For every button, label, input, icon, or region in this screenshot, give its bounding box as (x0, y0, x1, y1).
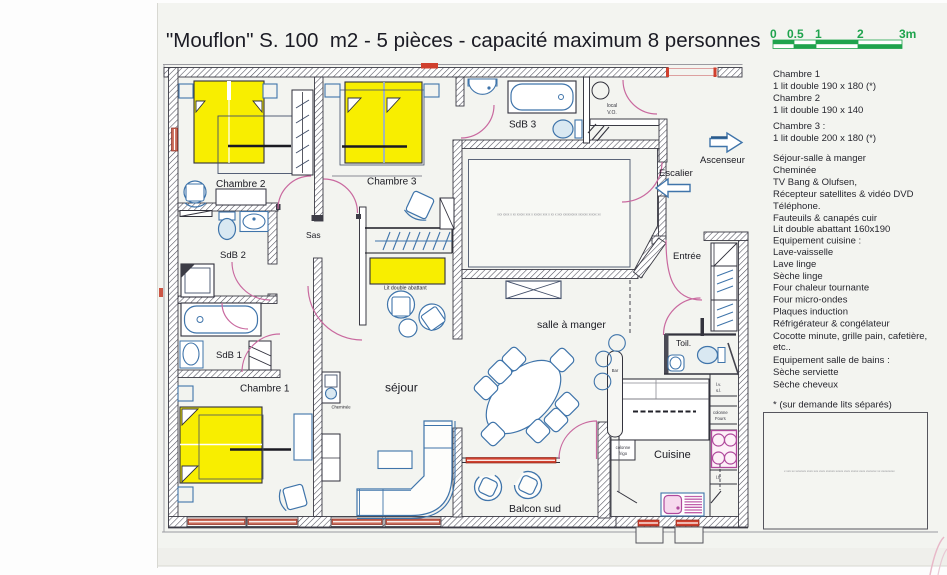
svg-text:Balcon sud: Balcon sud (509, 503, 561, 515)
svg-text:Lit double abattant: Lit double abattant (384, 286, 427, 292)
svg-text:Réfrigérateur & congélateur: Réfrigérateur & congélateur (773, 319, 890, 330)
svg-text:Ascenseur: Ascenseur (700, 155, 745, 166)
svg-text:etc..: etc.. (773, 342, 791, 353)
svg-text:Equipement cuisine :: Equipement cuisine : (773, 236, 861, 247)
svg-text:* (sur demande lits séparés): * (sur demande lits séparés) (773, 400, 892, 411)
svg-text:séjour: séjour (385, 381, 418, 395)
svg-text:Sèche linge: Sèche linge (773, 271, 823, 282)
svg-text:Chambre 1: Chambre 1 (773, 69, 820, 80)
svg-text:Cuisine: Cuisine (654, 449, 691, 461)
svg-text:Lave linge: Lave linge (773, 259, 816, 270)
svg-text:1 lit double 190 x 140: 1 lit double 190 x 140 (773, 105, 863, 116)
svg-text:Sèche serviette: Sèche serviette (773, 367, 838, 378)
svg-text:Chambre 1: Chambre 1 (240, 384, 290, 395)
svg-text:Entrée: Entrée (673, 251, 701, 262)
svg-text:xxx xxxx x xx xxxxx xxx x xxxx: xxx xxxx x xx xxxxx xxx x xxxxx xxx x xx… (497, 213, 601, 217)
svg-text:colonne: colonne (616, 445, 631, 450)
svg-text:l.fr.: l.fr. (716, 475, 722, 480)
svg-text:TV Bang & Olufsen,: TV Bang & Olufsen, (773, 177, 857, 188)
svg-text:Lave-vaisselle: Lave-vaisselle (773, 247, 833, 258)
svg-text:Cheminée: Cheminée (773, 165, 816, 176)
svg-text:l.v.: l.v. (716, 382, 721, 387)
svg-text:Téléphone.: Téléphone. (773, 201, 821, 212)
svg-text:1: 1 (815, 27, 822, 41)
svg-text:1 lit double 200 x 180 (*): 1 lit double 200 x 180 (*) (773, 133, 876, 144)
svg-text:colonne: colonne (713, 410, 728, 415)
svg-text:Lit double abattant 160x190: Lit double abattant 160x190 (773, 224, 890, 235)
svg-text:Fauteuils & canapés cuir: Fauteuils & canapés cuir (773, 213, 877, 224)
svg-text:Sèche cheveux: Sèche cheveux (773, 380, 838, 391)
svg-text:1 lit double 190 x 180 (*): 1 lit double 190 x 180 (*) (773, 81, 876, 92)
svg-text:Séjour-salle à manger: Séjour-salle à manger (773, 153, 866, 164)
svg-text:salle à manger: salle à manger (537, 319, 606, 331)
svg-text:frigo: frigo (619, 451, 628, 456)
svg-text:0.5: 0.5 (787, 27, 804, 41)
svg-text:0: 0 (770, 27, 777, 41)
svg-text:SdB 3: SdB 3 (509, 120, 537, 131)
svg-text:Chambre 2: Chambre 2 (216, 179, 266, 190)
svg-text:3m: 3m (899, 27, 916, 41)
svg-text:Four micro-ondes: Four micro-ondes (773, 295, 848, 306)
svg-text:V.O.: V.O. (607, 110, 617, 116)
svg-text:Escalier: Escalier (659, 168, 693, 179)
svg-text:"Mouflon" S. 100 m2 - 5 pièce: "Mouflon" S. 100 m2 - 5 pièces - capacit… (166, 29, 761, 52)
svg-text:Sas: Sas (306, 230, 321, 240)
svg-text:SdB 1: SdB 1 (216, 350, 242, 361)
svg-text:Récepteur satellites & vidéo D: Récepteur satellites & vidéo DVD (773, 189, 914, 200)
svg-text:Fours: Fours (715, 416, 726, 421)
svg-text:Plaques induction: Plaques induction (773, 307, 848, 318)
svg-text:x xxx xx xxxxxxx xxxx xxx xxxx: x xxx xx xxxxxxx xxxx xxx xxxx xxxxxx xx… (784, 469, 895, 473)
svg-text:Chambre 3 :: Chambre 3 : (773, 121, 825, 132)
svg-text:Toil.: Toil. (676, 338, 691, 348)
svg-text:Cheminée: Cheminée (331, 405, 351, 410)
svg-text:local: local (607, 103, 617, 109)
svg-text:Chambre 3: Chambre 3 (367, 177, 417, 188)
svg-text:SdB 2: SdB 2 (220, 250, 246, 261)
svg-text:Cocotte minute, grille pain, c: Cocotte minute, grille pain, cafetière, (773, 331, 927, 342)
svg-text:Chambre 2: Chambre 2 (773, 93, 820, 104)
svg-text:Four chaleur tournante: Four chaleur tournante (773, 283, 869, 294)
svg-text:Bar: Bar (612, 368, 619, 373)
svg-text:s.l.: s.l. (716, 388, 721, 393)
svg-text:2: 2 (857, 27, 864, 41)
svg-text:Equipement salle de bains :: Equipement salle de bains : (773, 355, 890, 366)
